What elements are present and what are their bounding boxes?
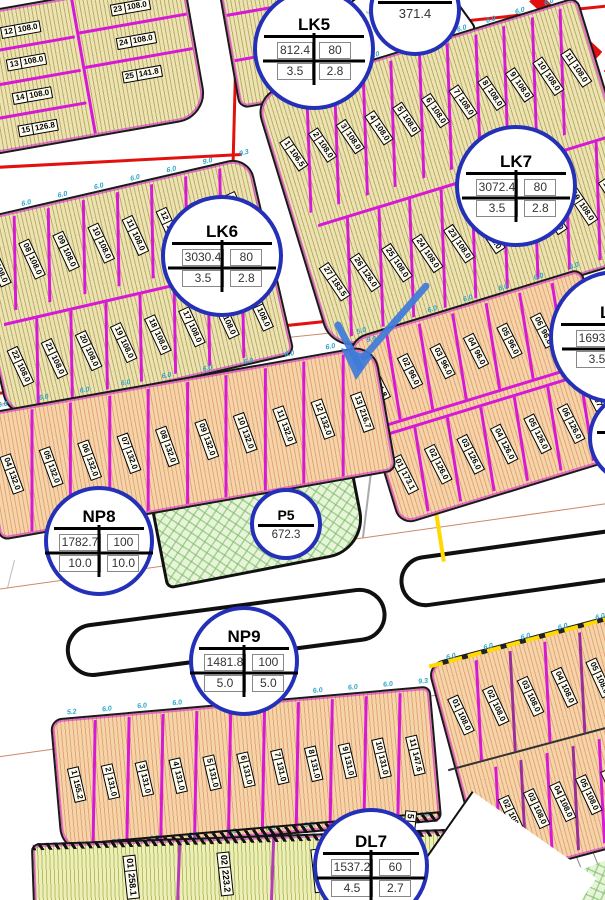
checkmark-annotation-icon [320,283,435,395]
plot-label: 11147.6 [405,735,426,776]
badge-value: 4.5 [331,880,374,897]
plot-label: 03126.0 [457,434,486,475]
plot-area: 126.0 [497,436,516,461]
plot-area: 108.0 [455,93,476,118]
plot-area: 147.6 [409,748,424,773]
badge-value: 2.8 [524,200,556,217]
plot-strip: 08132.0 [147,382,186,511]
plot-strip: 01108.0 [443,660,480,768]
plot-label: 14108.0 [12,86,53,105]
badge-lk7: LK73072.4803.52.8 [455,125,577,247]
plot-number: 13 [9,59,20,70]
plot-area: 108.0 [253,303,272,328]
badge-value: 3.5 [576,351,605,368]
badge-value: 3.5 [476,200,519,217]
badge-value: 3030.4 [182,249,225,266]
plot-label: 04132.0 [0,453,24,495]
badge-value: 672.3 [272,529,301,541]
plot-number: 18 [600,180,605,193]
plot-label: 5131.0 [202,754,222,791]
plot-area: 96.0 [437,355,454,376]
plot-area: 126.0 [564,416,583,441]
badge-value: 10.0 [107,555,139,572]
plot-label: 03108.0 [516,675,544,716]
plot-label: 06108.0 [601,768,605,809]
plot-area: 131.0 [172,767,187,792]
plot-label: 04126.0 [490,423,519,464]
plot-area: 108.0 [313,136,334,161]
plot-area: 108.0 [511,76,532,101]
badge-values: 3072.4803.52.8 [470,176,563,220]
plot-area: 108.0 [569,60,590,85]
plot-area: 108.0 [26,87,50,101]
road-median-oval [396,525,605,610]
plot-label: 05132.0 [38,446,63,488]
plot-area: 96.0 [470,345,487,366]
badge-name: LK5 [298,16,330,33]
plot-strip: 04108.0 [543,633,583,742]
plot-area: 96.0 [504,335,521,356]
plot-area: 108.0 [556,794,575,819]
plot-area: 108.0 [14,22,38,36]
cadastral-map: 12108.013108.014108.015126.8 23108.02410… [0,0,605,900]
plot-strip: 6108.0 [417,44,450,179]
plot-label: 22108.0 [6,345,34,386]
plot-area: 132.0 [200,432,217,457]
plot-label: 01258.1 [123,855,141,900]
plot-area: 131.0 [104,773,119,798]
plot-label: 21108.0 [41,337,69,378]
plot-area: 126.8 [31,120,55,134]
plot-area: 131.0 [205,764,220,789]
plot-strip: 10131.0 [362,693,398,823]
badge-name: LK8 [600,304,605,321]
badge-value: 100 [252,654,284,671]
plot-area: 155.2 [70,776,85,801]
badge-value: 2.8 [230,270,262,287]
plot-area: 132.0 [44,459,61,484]
badge-name: P5 [277,508,294,522]
plot-label: 12108.0 [0,20,41,39]
plot-strip: 11108.0 [559,1,592,136]
plot-strip: 3131.0 [125,714,161,844]
plot-number: 15 [21,124,32,135]
plot-strip: 09132.0 [186,375,225,504]
plot-label: 7108.0 [448,84,478,120]
plot-area: 108.0 [185,319,204,344]
plot-label: 10108.0 [532,57,564,97]
badge-divider [597,431,605,434]
plot-number: 12 [313,401,325,413]
plot-strip: 10108.0 [530,10,563,145]
badge-name: LK6 [206,223,238,240]
plot-strip: 19108.0 [104,295,140,390]
plot-label: 01108.0 [447,694,475,735]
plot-number: 04 [1,456,13,468]
badge-value: 2.7 [379,880,411,897]
badge-values: 1782.710010.010.0 [53,531,146,575]
badge-p5: P5672.3 [250,488,322,560]
plot-area: 108.0 [582,788,601,813]
plot-area: 258.1 [125,870,139,897]
badge-value: 1782.7 [59,534,102,551]
badge-value: 60 [379,859,411,876]
plot-area: 131.0 [138,770,153,795]
plot-area: 131.0 [273,758,288,783]
plot-number: 02 [218,854,230,865]
plot-label: 04108.0 [551,666,579,707]
plot-area: 108.0 [426,101,447,126]
plot-area: 108.0 [129,33,153,47]
plot-area: 216.7 [355,404,372,429]
plot-label: 02108.0 [482,685,510,726]
plot-label: 7131.0 [270,748,290,785]
plot-label: 0596.0 [496,322,523,359]
badge-value: 5.0 [204,675,247,692]
badge-values: 1481.81005.05.0 [198,651,291,695]
plot-label: 23108.0 [442,224,474,264]
plot-label: 3131.0 [135,760,155,797]
plot-strip: 09108.0 [47,201,83,303]
plot-area: 108.0 [123,0,147,13]
plot-label: 9108.0 [505,67,535,103]
plot-strip: 02108.0 [474,651,514,760]
plot-area: 132.0 [83,452,100,477]
plot-strip: 02223.2 [176,837,272,900]
plot-label: 8131.0 [304,745,324,782]
plot-strip: 05108.0 [578,623,605,732]
plot-label: 6131.0 [236,751,256,788]
badge-value: 1693.8 [576,330,605,347]
plot-number: 05 [40,449,52,461]
plot-area: 126.0 [464,446,483,471]
plot-label: 1155.2 [67,766,87,803]
plot-label: 19108.0 [109,322,137,363]
plot-label: 0496.0 [463,332,490,369]
plot-area: 108.0 [454,707,473,732]
plot-area: 108.0 [0,259,9,284]
plot-area: 132.0 [239,425,256,450]
plot-label: 20108.0 [75,329,103,370]
badge-value: 2.8 [319,63,351,80]
plot-label: 07132.0 [116,432,141,474]
badge-value: 812.4 [277,42,313,59]
plot-label: 8108.0 [477,76,507,112]
plot-label: 10108.0 [87,223,115,264]
badge-value: 10.0 [59,555,102,572]
plot-strip: 11132.0 [263,361,302,490]
plot-label: 02126.0 [424,444,453,485]
plot-label: 1106.5 [279,136,309,172]
plot-label: 13108.0 [6,53,47,72]
plot-strip: 01258.1 [85,840,178,900]
plot-strip: 5131.0 [193,708,229,838]
plot-area: 108.0 [530,801,549,826]
plot-number: 12 [3,26,14,37]
plot-label: 24108.0 [115,31,156,50]
plot-label: 9131.0 [338,742,358,779]
badge-name: NP8 [82,508,115,525]
plot-area: 108.0 [82,343,101,368]
plot-label: 15126.8 [17,119,58,138]
plot-strip: 11108.0 [115,185,151,287]
plot-area: 131.0 [239,761,254,786]
plot-strip: 03108.0 [509,642,549,751]
plot-label: 18108.0 [144,314,172,355]
plot-label: 08132.0 [155,425,180,467]
plot-label: 07108.0 [0,246,12,287]
plot-number: 11 [274,408,286,419]
plot-strip: 04132.0 [0,409,30,537]
plot-area: 126.0 [431,457,450,482]
plot-area: 108.0 [541,69,562,94]
plot-area: 108.0 [25,251,44,276]
plot-area: 173.1 [398,467,417,492]
plot-strip: 08108.0 [13,208,49,310]
plot-area: 108.0 [370,119,391,144]
badge-value: 3.5 [277,63,313,80]
plot-band: 23108.024108.025141.8 [70,0,204,133]
plot-label: 10132.0 [233,411,258,453]
badge-lk6: LK63030.4803.52.8 [161,195,283,317]
plot-label: 25108.0 [380,243,412,283]
plot-area: 108.0 [342,127,363,152]
plot-number: 25 [124,71,135,82]
plot-number: 11 [406,738,418,749]
badge-values: 1537.2604.52.7 [325,856,418,900]
badge-divider [378,1,452,4]
badge-value: 80 [524,179,556,196]
badge-np9: NP91481.81005.05.0 [189,606,299,716]
plot-strip: 8131.0 [294,699,330,829]
plot-area: 132.0 [161,439,178,464]
plot-area: 108.0 [575,198,596,223]
plot-number: 06 [79,442,91,454]
badge-value: 80 [319,42,351,59]
badge-name: NP9 [227,628,260,645]
plot-strip: 10108.0 [81,193,117,295]
plot-number: 01 [124,858,136,869]
plot-label: 12132.0 [311,398,336,440]
block-top-left: 12108.013108.014108.015126.8 23108.02410… [0,0,209,157]
badge-value: 371.4 [399,6,432,21]
plot-area: 108.0 [592,670,605,695]
plot-label: 11108.0 [121,215,149,256]
plot-number: 10 [235,415,247,427]
plot-area: 108.0 [116,335,135,360]
badge-value: 3.5 [182,270,225,287]
plot-label: 09132.0 [194,418,219,460]
plot-label: 09108.0 [52,231,80,272]
plot-label: 10131.0 [371,737,392,779]
badge-values: 3030.4803.52.8 [176,246,269,290]
badge-value: 80 [230,249,262,266]
plot-area: 108.0 [150,327,169,352]
badge-name: LK7 [500,153,532,170]
badge-value: 1481.8 [204,654,247,671]
plot-area: 108.0 [389,255,410,280]
plot-number: 5 [405,813,415,819]
plot-number: 14 [15,92,26,103]
plot-area: 108.0 [128,228,147,253]
plot-label: 05108.0 [585,657,605,698]
plot-number: 08 [157,428,169,440]
plot-area: 108.0 [451,236,472,261]
plot-area: 108.0 [13,358,32,383]
badge-value: 3072.4 [476,179,519,196]
plot-number: 24 [118,37,129,48]
plot-area: 132.0 [316,411,333,436]
plot-strip: 9131.0 [328,696,364,826]
plot-strip: 4108.0 [361,61,394,196]
plot-area: 132.0 [277,418,294,443]
badge-values: 1693.83.52.8 [570,327,605,371]
plot-number: 13 [352,394,364,406]
plot-strip: 10132.0 [224,368,263,497]
plot-number: 09 [196,421,208,433]
plot-label: 4108.0 [364,110,394,146]
plot-area: 108.0 [557,679,576,704]
badge-value: 100 [107,534,139,551]
plot-area: 108.0 [20,55,44,69]
plot-strip: 18108.0 [138,287,174,382]
plot-area: 108.0 [94,236,113,261]
plot-area: 132.0 [122,445,139,470]
plot-area: 108.0 [523,688,542,713]
plot-number: 10 [373,741,385,752]
plot-label: 2108.0 [307,128,337,164]
plot-label: 13216.7 [350,391,375,433]
plot-label: 6108.0 [420,93,450,129]
plot-area: 108.0 [489,698,508,723]
plot-label: 25141.8 [121,65,162,84]
plot-label: 11132.0 [272,405,297,446]
plot-area: 126.0 [531,426,550,451]
plot-strip: 2131.0 [91,717,127,847]
plot-label: 3108.0 [336,119,366,155]
badge-values: 812.4803.52.8 [271,39,357,83]
plot-area: 108.0 [420,246,441,271]
plot-area: 108.0 [47,350,66,375]
plot-label: 23108.0 [109,0,150,16]
plot-label: 2131.0 [101,763,121,800]
plot-strip: 5108.0 [389,53,422,188]
plot-area: 131.0 [341,752,356,777]
plot-label: 06132.0 [77,439,102,481]
plot-area: 108.0 [398,110,419,135]
badge-divider [258,524,314,527]
plot-area: 141.8 [135,67,159,81]
plot-label: 08108.0 [18,238,46,279]
plot-label: 4131.0 [169,757,189,794]
plot-strip: 6131.0 [226,705,262,835]
plot-area: 108.0 [59,244,78,269]
plot-area: 106.5 [285,145,306,170]
plot-strip: 7131.0 [260,702,296,832]
plot-label: 24108.0 [411,234,443,274]
plot-area: 132.0 [5,466,22,491]
plot-strip: 1155.2 [60,720,93,850]
plot-area: 108.0 [483,84,504,109]
plot-area: 131.0 [375,751,390,776]
badge-name: DL7 [355,833,387,850]
badge-value: 5.0 [252,675,284,692]
plot-number: 07 [118,435,130,447]
plot-label: 02223.2 [216,851,234,896]
plot-area: 131.0 [307,755,322,780]
plot-label: 18108.0 [598,177,605,217]
plot-label: 11108.0 [560,48,592,87]
plot-label: 06126.0 [557,403,586,444]
badge-value: 1537.2 [331,859,374,876]
plot-label: 05126.0 [523,413,552,454]
badge-np8: NP81782.710010.010.0 [44,486,154,596]
plot-area: 223.2 [219,866,233,893]
plot-label: 5108.0 [392,102,422,138]
plot-number: 23 [112,3,123,14]
plot-strip: 4131.0 [159,711,195,841]
badge-divider [561,323,605,326]
plot-strip: 11147.6 [396,690,432,820]
